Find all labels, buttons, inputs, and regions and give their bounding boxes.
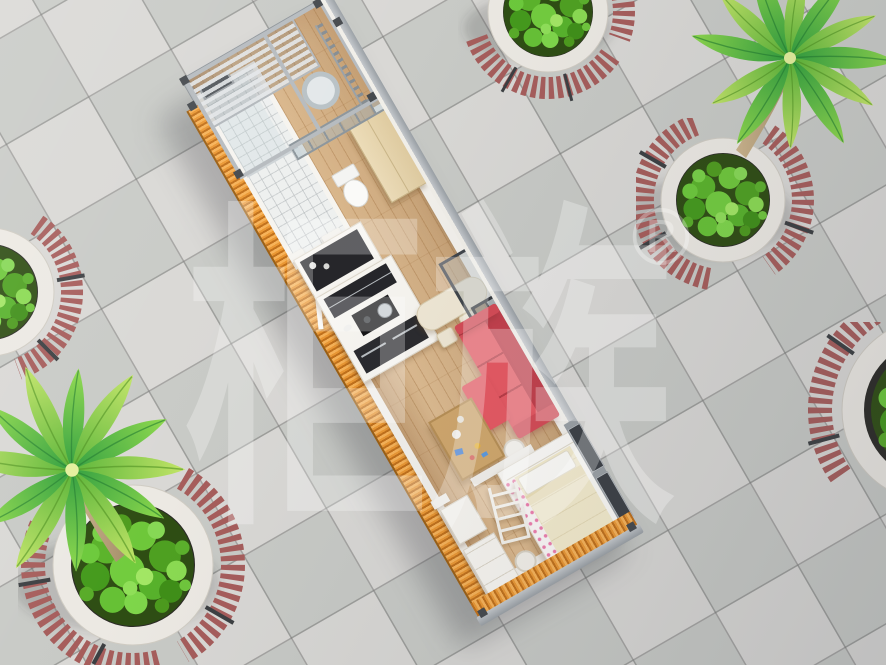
planter-right-edge	[806, 322, 886, 532]
watermark-logo: 柜族	[185, 205, 675, 545]
scene: 柜族 ®	[0, 0, 886, 665]
registered-trademark-icon: ®	[622, 200, 700, 278]
curved-bench	[619, 0, 624, 38]
palm-tree-bottom-left	[0, 348, 212, 598]
watermark-text: 柜族	[185, 177, 675, 573]
palm-fronds	[0, 362, 186, 574]
planter-top-center	[458, 0, 654, 104]
palm-tree-top-right	[652, 0, 886, 186]
palm-fronds	[689, 0, 886, 150]
